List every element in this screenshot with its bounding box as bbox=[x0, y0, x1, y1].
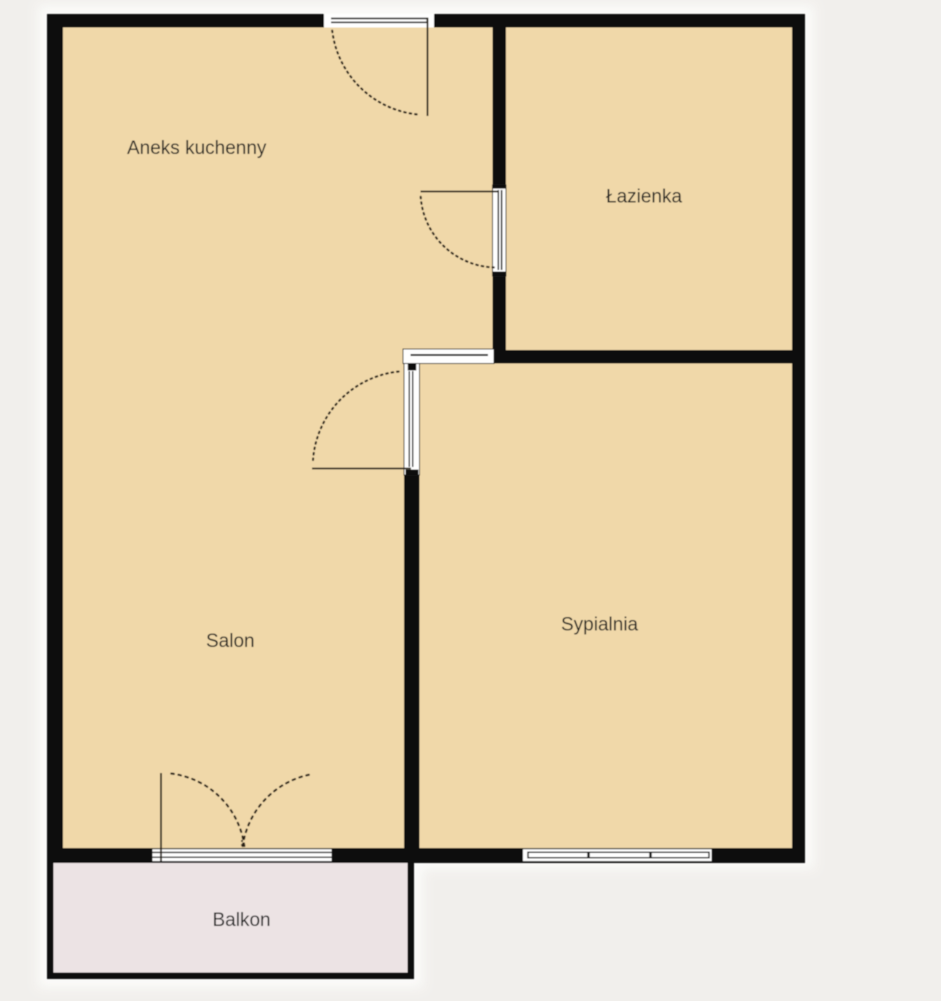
svg-text:Salon: Salon bbox=[206, 631, 255, 652]
svg-text:Sypialnia: Sypialnia bbox=[561, 615, 639, 636]
svg-text:Łazienka: Łazienka bbox=[606, 187, 682, 208]
svg-text:Balkon: Balkon bbox=[213, 910, 271, 931]
svg-text:Aneks kuchenny: Aneks kuchenny bbox=[127, 138, 267, 159]
